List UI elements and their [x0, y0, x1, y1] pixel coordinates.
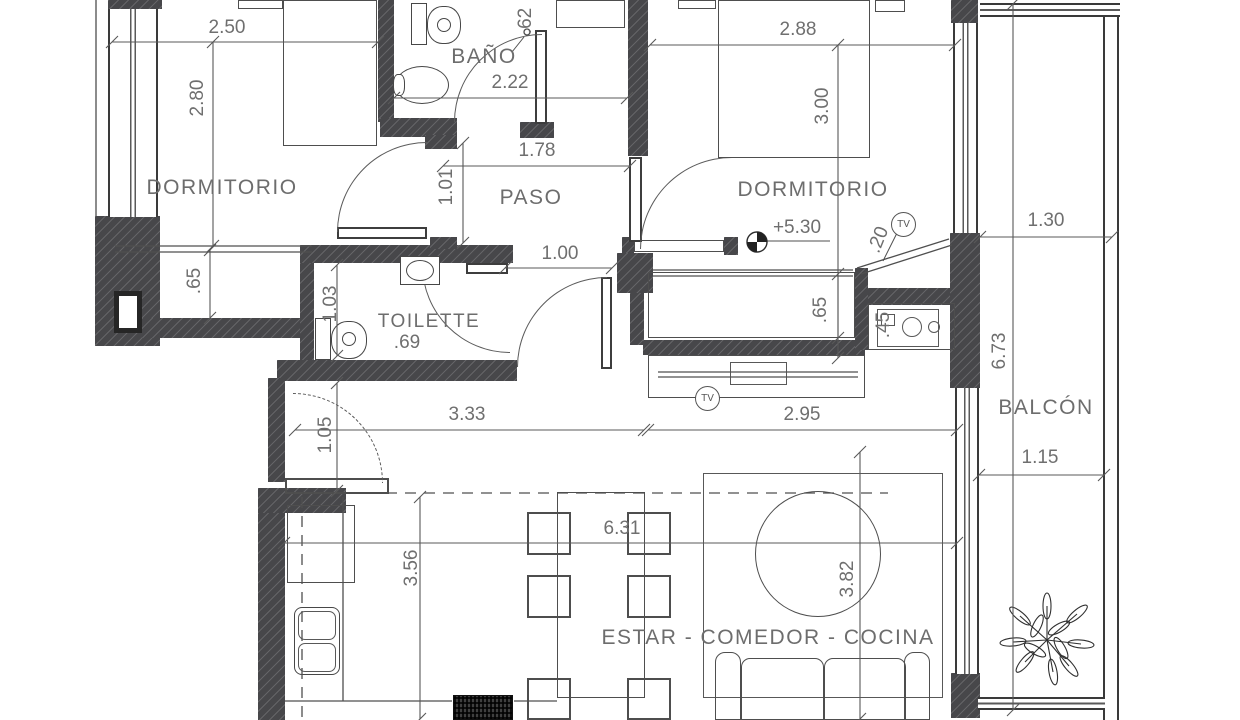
- dim-label: .45: [873, 312, 895, 338]
- dim-label: 6.73: [989, 333, 1011, 370]
- dim-label: 1.00: [542, 243, 579, 265]
- room-label: TOILETTE: [378, 311, 480, 333]
- dim-label: 1.78: [519, 140, 556, 162]
- floor-plan: TV TV: [0, 0, 1240, 720]
- room-label: BALCÓN: [998, 396, 1093, 420]
- dim-label: +5.30: [773, 217, 821, 239]
- tv-icon: TV: [891, 212, 916, 237]
- tv-label: TV: [897, 219, 910, 230]
- dim-label: 2.88: [780, 19, 817, 41]
- dim-label: 3.56: [401, 550, 423, 587]
- plant: [1000, 593, 1095, 685]
- level-marker: [747, 232, 767, 252]
- dim-label: 2.95: [784, 404, 821, 426]
- dim-label: 6.31: [604, 518, 641, 540]
- tv-icon: TV: [695, 386, 720, 411]
- dim-label: .65: [810, 297, 832, 323]
- dim-label: 1.03: [320, 286, 342, 323]
- room-label: DORMITORIO: [737, 178, 888, 202]
- dim-label: .65: [184, 268, 206, 294]
- dim-label: 3.82: [837, 561, 859, 598]
- room-label: ESTAR - COMEDOR - COCINA: [601, 626, 934, 650]
- dim-label: 2.50: [209, 17, 246, 39]
- dim-label: 3.00: [812, 88, 834, 125]
- dim-label: 3.33: [449, 404, 486, 426]
- plan-linework: [0, 0, 1240, 720]
- dim-label: 1.30: [1028, 210, 1065, 232]
- dim-label: 1.05: [315, 417, 337, 454]
- room-label: DORMITORIO: [146, 176, 297, 200]
- dim-label: 1.01: [436, 169, 458, 206]
- dim-label: 1.15: [1022, 447, 1059, 469]
- room-label: BAÑO: [451, 45, 517, 69]
- dim-label: .69: [394, 332, 420, 354]
- room-label: PASO: [500, 186, 563, 210]
- dim-label: 2.22: [492, 72, 529, 94]
- tv-label: TV: [701, 393, 714, 404]
- dim-label: .62: [515, 8, 537, 34]
- dim-label: 2.80: [187, 80, 209, 117]
